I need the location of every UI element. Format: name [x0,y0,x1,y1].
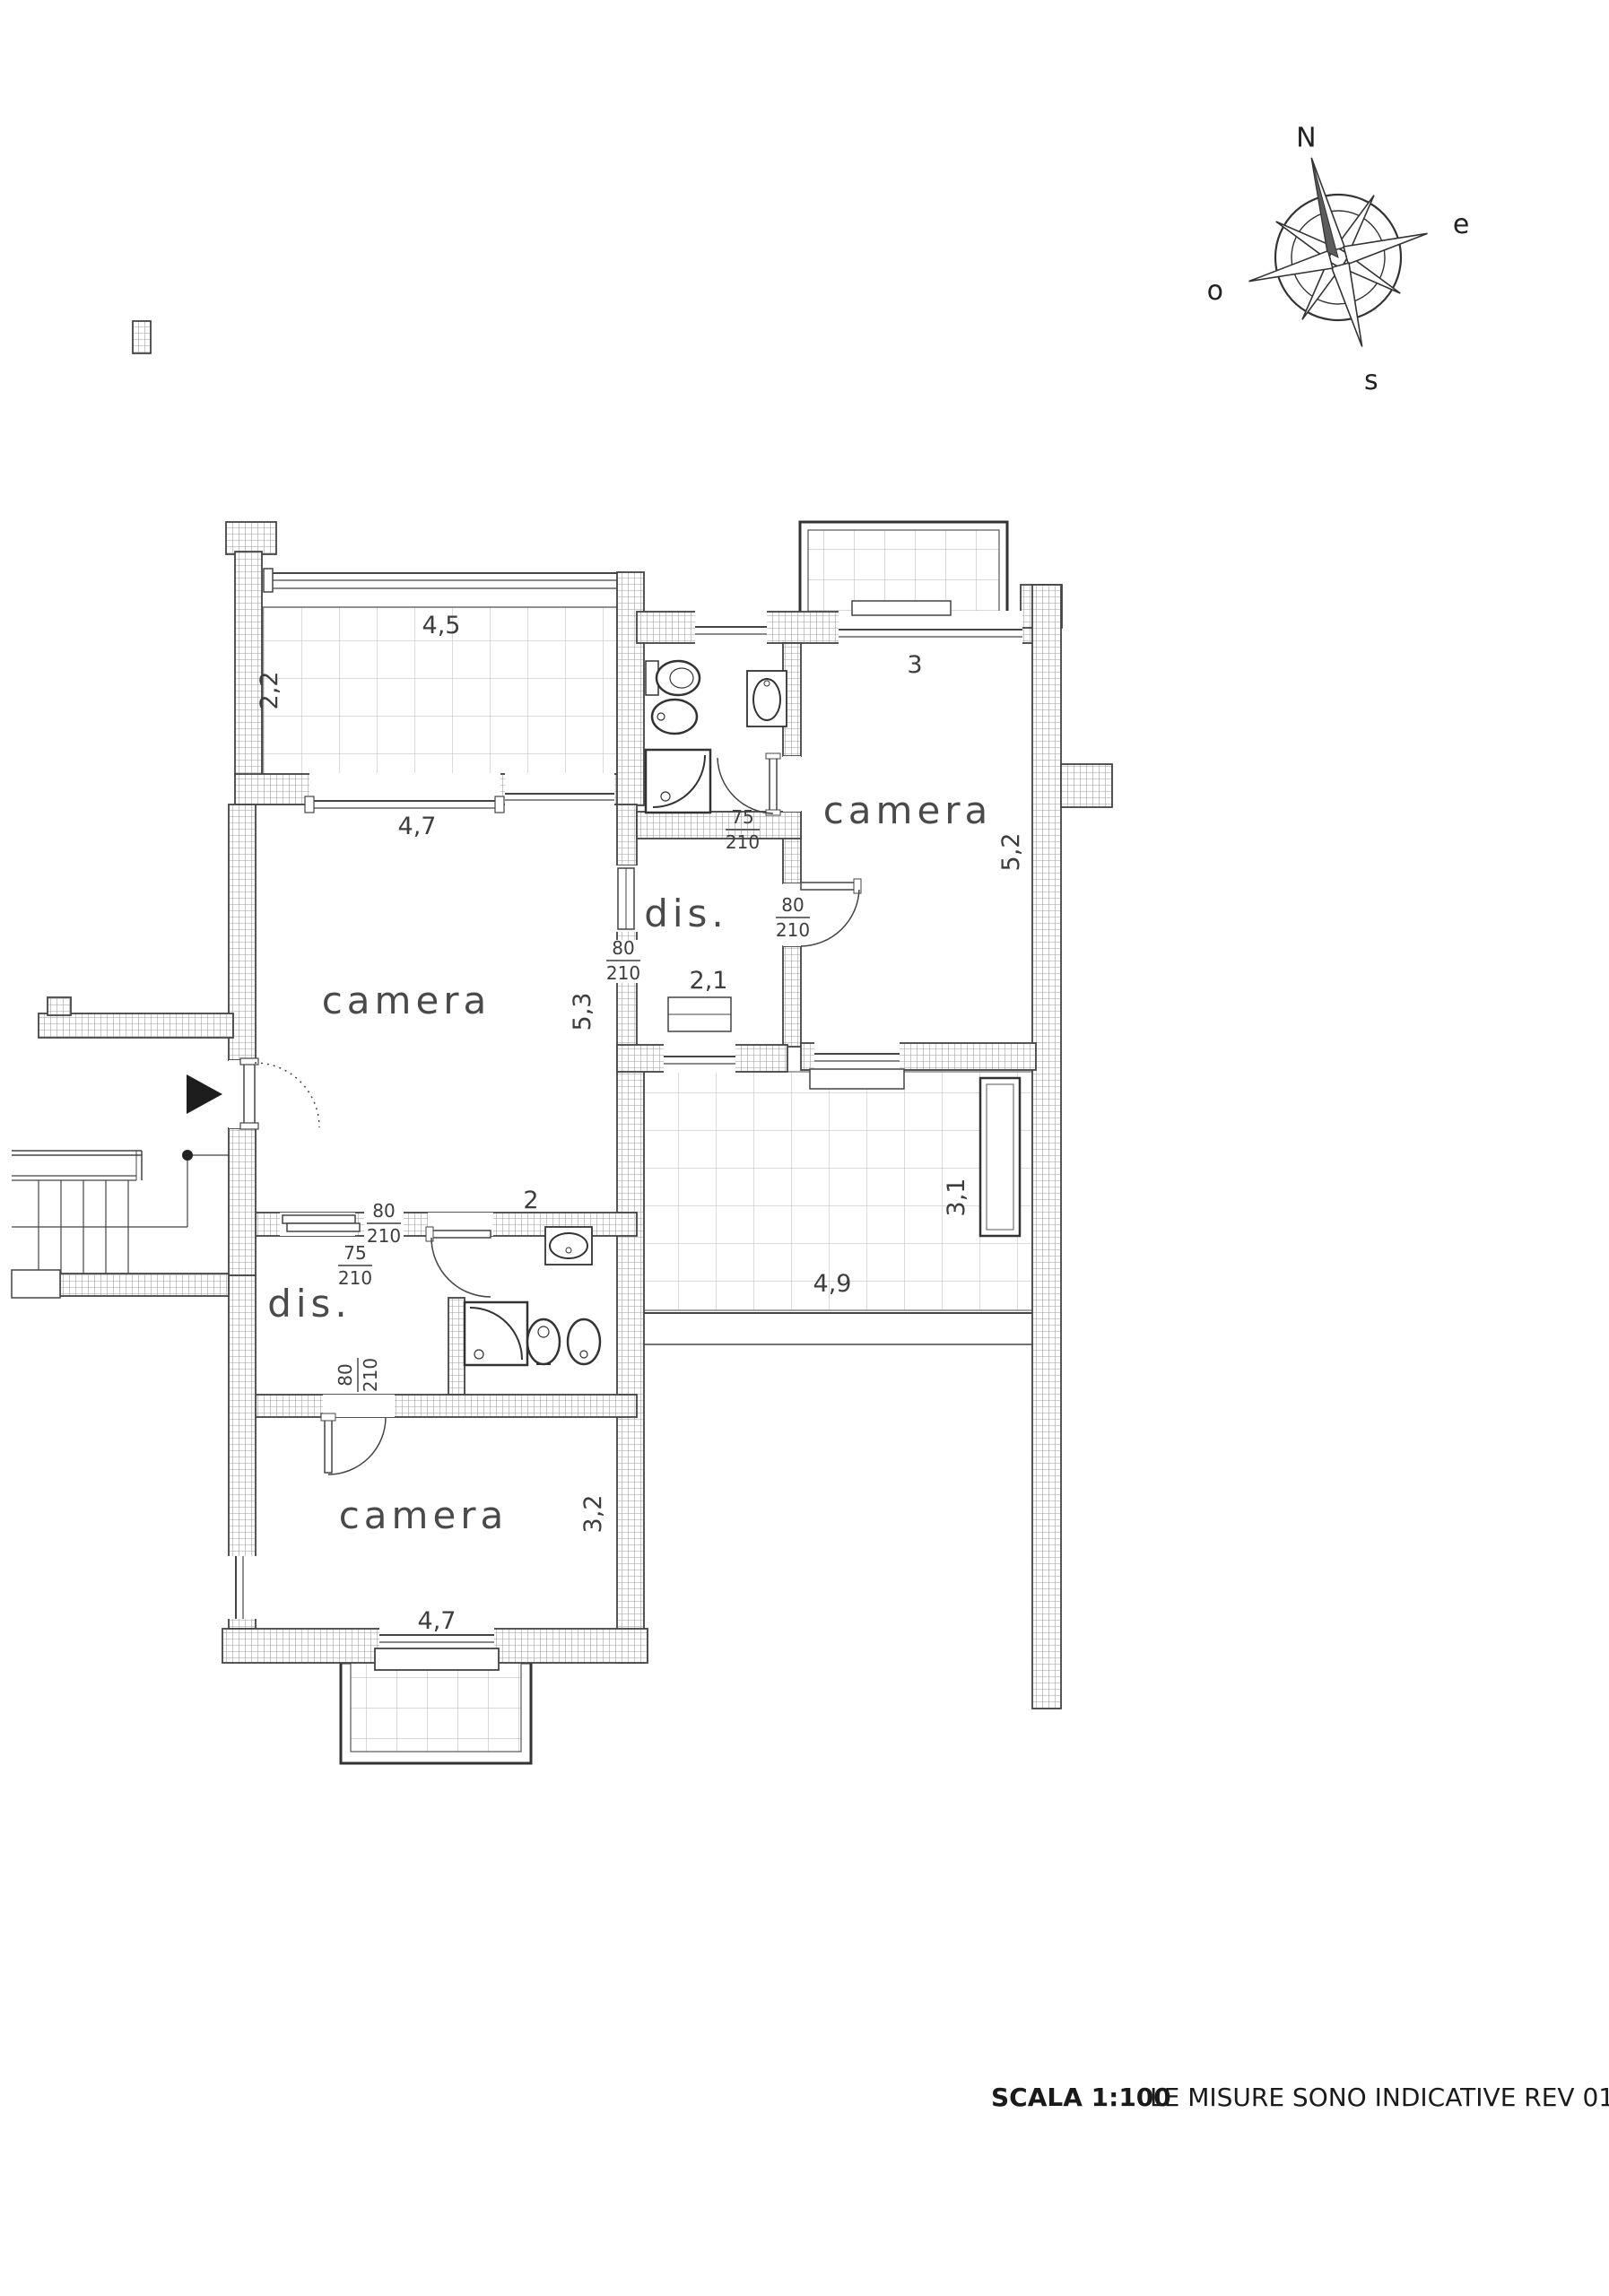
door-label-camera-bottom: 80 210 [335,1358,381,1392]
dim-camera-bottom-height: 3,2 [579,1495,607,1534]
compass-label-north: N [1296,123,1316,154]
door-label-bath-lower: 75 210 [338,1242,372,1289]
floorplan-page: 4,5 2,2 4,7 camera 5,3 dis. 2,1 3 camera… [0,0,1609,2296]
footer-scale: SCALA 1:100 [991,2083,1171,2112]
dim-dis-upper-width: 2,1 [690,967,728,995]
door-label-camera-left-sliding: 80 210 [364,1200,404,1247]
compass-label-south: s [1364,365,1379,396]
terrace [644,1072,1032,1344]
room-camera-right: camera [823,788,993,832]
camera-right-door-leaf [801,883,859,890]
dim-camera-right-width: 3 [907,651,922,679]
entrance-door-leaf [244,1064,255,1125]
camera-bottom-door-leaf [325,1419,332,1473]
shower-drain [661,792,670,801]
shower [465,1302,527,1365]
balcony-bottom [341,1663,531,1763]
svg-text:80: 80 [372,1200,395,1222]
wall-stairwell-top [39,1013,233,1038]
stair-node [182,1150,193,1161]
dim-camera-left-width: 4,7 [398,813,437,840]
floorplan-drawing: 4,5 2,2 4,7 camera 5,3 dis. 2,1 3 camera… [0,0,1609,2296]
shower [646,750,710,813]
dim-balcony-top-width: 4,5 [422,612,461,639]
dim-terrace-depth: 3,1 [943,1178,970,1217]
footer-note: LE MISURE SONO INDICATIVE REV 01/2018 [1150,2083,1609,2112]
svg-text:80: 80 [781,894,804,916]
compass-label-west: o [1207,275,1223,307]
dim-camera-right-height: 5,2 [997,833,1025,872]
dim-terrace-width: 4,9 [813,1270,852,1298]
door-label-camera-left-flush: 80 210 [604,937,642,984]
bath-upper-door-swing [718,758,773,813]
wall-camera-right-left-b [783,946,801,1047]
dim-camera-bottom-width: 4,7 [418,1607,457,1635]
svg-text:210: 210 [606,962,640,984]
bath-lower-door-swing [431,1238,491,1297]
svg-text:80: 80 [612,937,634,959]
dim-bath-lower-width: 2 [523,1187,538,1214]
wall-left-balcony [235,552,262,776]
svg-text:210: 210 [367,1225,401,1247]
bath-upper-fixtures [646,661,787,813]
room-dis-upper: dis. [644,891,728,935]
camera-left-sliding-door-b [287,1223,360,1231]
svg-text:210: 210 [776,919,810,941]
svg-text:80: 80 [335,1363,356,1386]
door-label-camera-right: 80 210 [776,894,810,941]
wall-stair-bottom [60,1274,229,1296]
entrance-door-swing [255,1063,319,1127]
wall-top-left-tick [133,321,151,353]
camera-left-sliding-door-a [283,1215,355,1223]
dim-balcony-top-depth: 2,2 [256,672,283,710]
wall-camera-left-right-a [617,804,637,865]
room-camera-left: camera [322,978,491,1022]
footer: SCALA 1:100 LE MISURE SONO INDICATIVE RE… [991,2083,1609,2112]
balcony-top-left [263,569,617,774]
svg-text:210: 210 [338,1267,372,1289]
railing-post [264,569,273,592]
dim-camera-left-height: 5,3 [569,993,596,1031]
sink-basin [550,1233,587,1258]
entrance-arrow-icon [187,1074,222,1114]
compass-rose: N e s o [1167,85,1510,433]
wall-protrusion-right [1061,764,1112,807]
svg-text:75: 75 [731,806,753,828]
svg-text:210: 210 [360,1358,381,1392]
wall-bath-lower-partition [448,1298,465,1395]
wall-camera-bottom-top [235,1395,637,1417]
stair-landing [12,1270,60,1298]
terrace-planter-inner [987,1084,1013,1230]
bath-lower-door-leaf [430,1231,491,1238]
room-camera-bottom: camera [339,1493,509,1537]
camera-bottom-door-swing [328,1417,386,1474]
wall-column-mid-top [617,572,644,805]
wall-stairwell-notch [48,997,71,1015]
bath-upper-door-leaf [770,758,777,812]
svg-text:75: 75 [344,1242,366,1264]
wall-party-right [1032,585,1061,1709]
wall-left-mid-b [229,1128,256,1275]
compass-label-east: e [1453,209,1469,240]
wall-mid-vertical-long [617,1047,644,1663]
svg-text:210: 210 [726,831,760,853]
shower-drain [474,1350,483,1359]
wall-pillar-top-left [226,522,276,554]
